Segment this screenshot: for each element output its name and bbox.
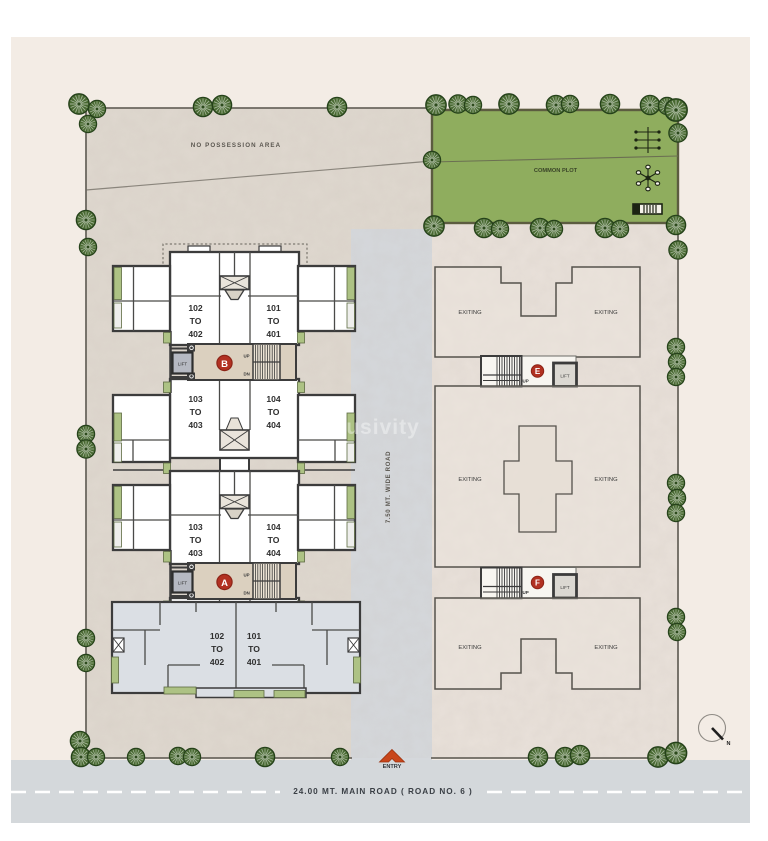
svg-text:DN: DN xyxy=(244,372,250,377)
svg-text:402: 402 xyxy=(210,657,225,667)
svg-text:EXITING: EXITING xyxy=(458,310,482,316)
svg-text:LIFT: LIFT xyxy=(560,374,570,379)
svg-text:E: E xyxy=(535,367,541,376)
svg-text:TO: TO xyxy=(211,644,223,654)
svg-text:EXITING: EXITING xyxy=(594,477,618,483)
svg-text:103: 103 xyxy=(188,522,203,532)
svg-text:TO: TO xyxy=(190,316,202,326)
svg-text:EXITING: EXITING xyxy=(594,310,618,316)
svg-text:103: 103 xyxy=(188,394,203,404)
svg-text:104: 104 xyxy=(266,394,281,404)
svg-text:EXITING: EXITING xyxy=(458,477,482,483)
svg-text:7.50 MT. WIDE ROAD: 7.50 MT. WIDE ROAD xyxy=(386,451,392,523)
svg-text:UP: UP xyxy=(523,379,529,384)
svg-text:TO: TO xyxy=(248,644,260,654)
svg-text:LIFT: LIFT xyxy=(178,362,188,367)
svg-text:Housivity: Housivity xyxy=(316,416,420,439)
svg-text:ENTRY: ENTRY xyxy=(383,764,402,770)
svg-text:TO: TO xyxy=(190,407,202,417)
svg-text:A: A xyxy=(221,578,228,589)
svg-text:N: N xyxy=(727,741,731,747)
svg-text:F: F xyxy=(535,579,540,588)
svg-text:404: 404 xyxy=(266,420,281,430)
svg-text:24.00 MT. MAIN ROAD ( ROAD NO.: 24.00 MT. MAIN ROAD ( ROAD NO. 6 ) xyxy=(293,787,473,796)
svg-text:402: 402 xyxy=(188,329,203,339)
svg-text:TO: TO xyxy=(268,316,280,326)
svg-text:B: B xyxy=(221,359,228,370)
svg-text:NO POSSESSION AREA: NO POSSESSION AREA xyxy=(191,142,281,149)
svg-text:TO: TO xyxy=(190,535,202,545)
svg-text:403: 403 xyxy=(188,548,203,558)
svg-text:404: 404 xyxy=(266,548,281,558)
svg-text:102: 102 xyxy=(210,631,225,641)
svg-text:EXITING: EXITING xyxy=(594,645,618,651)
svg-text:101: 101 xyxy=(266,303,281,313)
svg-text:101: 101 xyxy=(247,631,262,641)
svg-text:TO: TO xyxy=(268,535,280,545)
svg-text:COMMON PLOT: COMMON PLOT xyxy=(534,168,578,174)
svg-text:EXITING: EXITING xyxy=(458,645,482,651)
svg-text:TO: TO xyxy=(268,407,280,417)
svg-text:102: 102 xyxy=(188,303,203,313)
svg-text:401: 401 xyxy=(266,329,281,339)
svg-text:403: 403 xyxy=(188,420,203,430)
svg-text:401: 401 xyxy=(247,657,262,667)
svg-text:UP: UP xyxy=(244,354,250,359)
svg-text:104: 104 xyxy=(266,522,281,532)
